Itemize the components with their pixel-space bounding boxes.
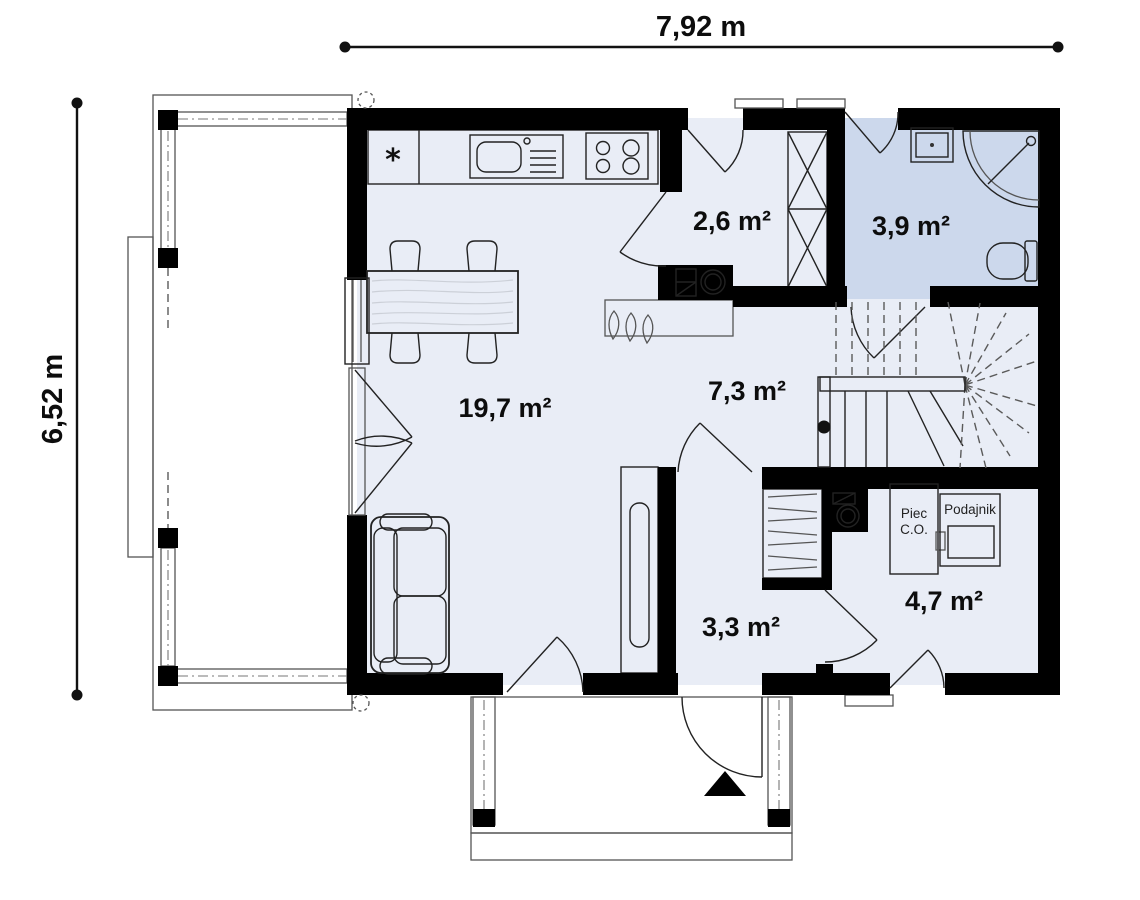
height-dimension-label: 6,52 m: [37, 354, 69, 444]
wall-left-upper: [347, 108, 367, 280]
wall-bathroom-bottom: [930, 286, 1038, 307]
porch-slab: [471, 697, 792, 833]
room-label-kitchen-living: 19,7 m²: [458, 393, 551, 423]
rain-pipe-icon: [353, 695, 369, 711]
kitchen-marker: *: [385, 143, 401, 178]
front-door: [682, 697, 762, 777]
porch-step: [471, 833, 792, 860]
terrace: [128, 95, 352, 710]
wall-top-middle: [743, 108, 845, 130]
dimension-endpoint: [340, 42, 351, 53]
wall-top-right: [898, 108, 1060, 130]
door-post-nub: [816, 664, 833, 675]
wall-left-lower: [347, 515, 367, 673]
wall-right: [1038, 108, 1060, 695]
wall-hall-stairs: [733, 286, 847, 307]
wall-bottom-2: [583, 673, 678, 695]
pergola-post: [158, 528, 178, 548]
wall-niche-side: [658, 467, 676, 673]
pergola-post: [158, 248, 178, 268]
floor-plan-page: Piec C.O. Podajnik 7,92 m 6,52 m 19,7 m²…: [0, 0, 1140, 900]
dimension-endpoint: [1053, 42, 1064, 53]
pergola-post: [158, 666, 178, 686]
room-label-stair-hall: 7,3 m²: [708, 376, 786, 406]
room-label-bathroom: 3,9 m²: [872, 211, 950, 241]
back-door-step: [845, 695, 893, 706]
terrace-side-step: [128, 237, 153, 557]
porch-column-left-base: [473, 809, 495, 827]
feeder-label: Podajnik: [944, 502, 996, 517]
room-label-entry-hall: 3,3 m²: [702, 612, 780, 642]
porch-column-right-base: [768, 809, 790, 827]
room-label-hall: 2,6 m²: [693, 206, 771, 236]
floor-plan-canvas: Piec C.O. Podajnik 7,92 m 6,52 m 19,7 m²…: [0, 0, 1140, 900]
terrace-outline: [153, 95, 352, 710]
rain-pipe-icon: [358, 92, 374, 108]
wall-top-left: [347, 108, 688, 130]
window-sill-2: [797, 99, 845, 108]
dimension-left: 6,52 m: [37, 98, 83, 701]
wall-kitchen-hall-divider: [660, 130, 682, 192]
wall-bottom-1: [347, 673, 503, 695]
wall-stairs-boiler: [762, 467, 1038, 489]
dimension-endpoint: [72, 98, 83, 109]
dimension-top: 7,92 m: [340, 11, 1064, 53]
wall-bottom-3: [762, 673, 890, 695]
pergola-post: [158, 110, 178, 130]
boiler-label-line1: Piec: [901, 506, 928, 521]
entrance-porch: [471, 695, 893, 860]
wall-bottom-4: [945, 673, 1060, 695]
wall-closet-bottom: [762, 578, 832, 590]
wall-wardrobe-bathroom: [827, 130, 845, 287]
entrance-arrow-icon: [704, 771, 746, 796]
room-label-boiler-room: 4,7 m²: [905, 586, 983, 616]
bathroom-floor: [837, 118, 1048, 299]
stairs-newel-post: [818, 421, 831, 434]
dimension-endpoint: [72, 690, 83, 701]
chimney-block: [826, 489, 868, 532]
window-sill-1: [735, 99, 783, 108]
width-dimension-label: 7,92 m: [656, 11, 746, 43]
boiler-label-line2: C.O.: [900, 522, 928, 537]
